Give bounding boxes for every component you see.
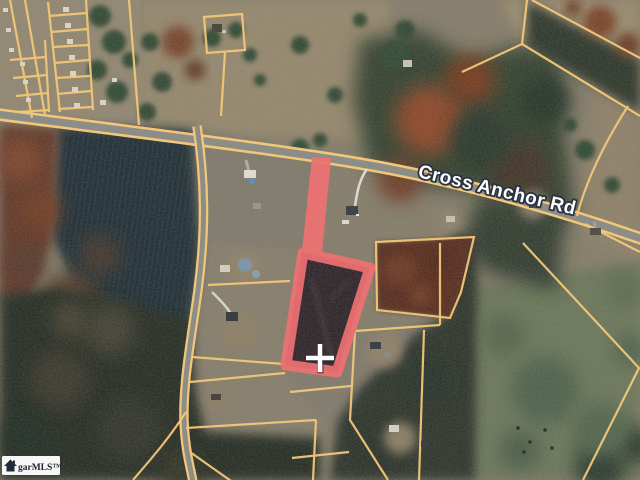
satellite-map: Cross Anchor Rd garMLS™ bbox=[0, 0, 640, 480]
watermark-label: garMLS™ bbox=[18, 463, 62, 473]
mls-watermark: garMLS™ bbox=[2, 456, 62, 475]
satellite-map-image: Cross Anchor Rd garMLS™ bbox=[0, 0, 640, 480]
